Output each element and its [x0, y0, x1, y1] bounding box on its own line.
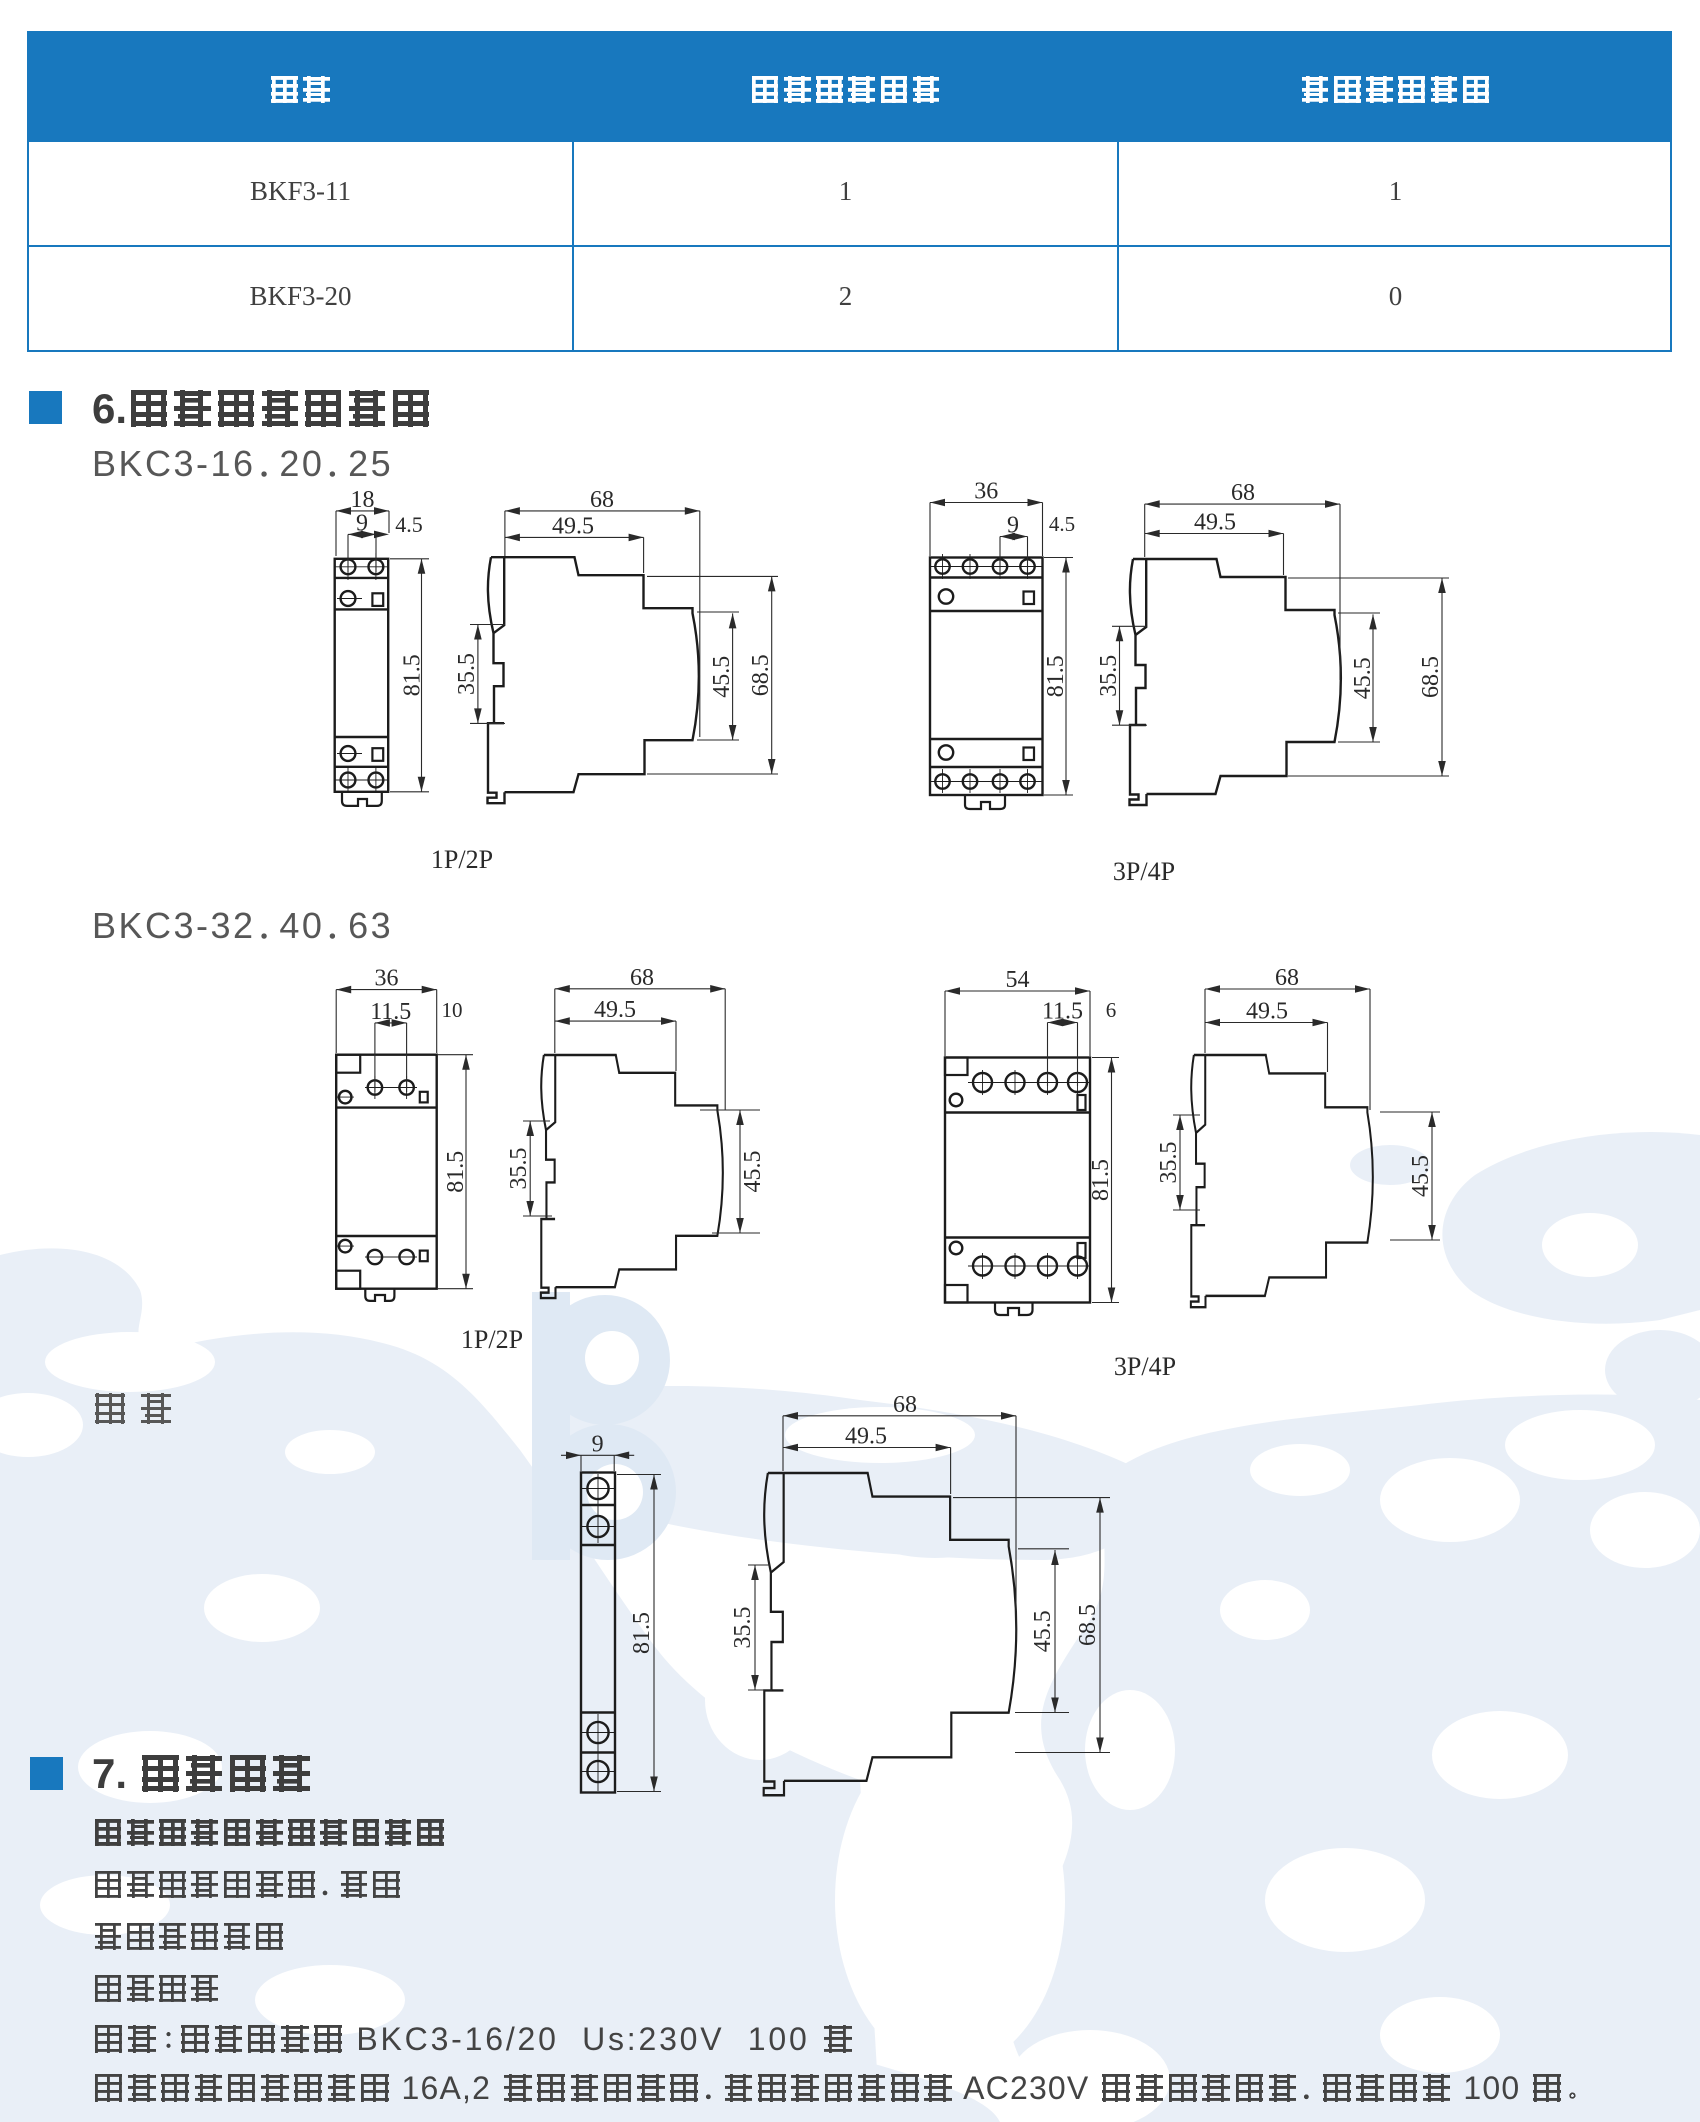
svg-text:4.5: 4.5: [395, 512, 423, 537]
svg-text:35.5: 35.5: [506, 1148, 532, 1190]
svg-text:68: 68: [590, 487, 614, 513]
svg-text:45.5: 45.5: [709, 656, 735, 698]
svg-text:81.5: 81.5: [1088, 1159, 1114, 1201]
svg-text:68.5: 68.5: [1075, 1604, 1101, 1646]
svg-text:45.5: 45.5: [740, 1151, 766, 1193]
svg-text:36: 36: [974, 479, 998, 505]
svg-text:9: 9: [1007, 513, 1019, 539]
svg-text:49.5: 49.5: [594, 997, 636, 1023]
svg-text:45.5: 45.5: [1030, 1610, 1056, 1652]
svg-text:9: 9: [592, 1431, 604, 1457]
svg-text:49.5: 49.5: [552, 513, 594, 539]
svg-text:81.5: 81.5: [629, 1612, 655, 1654]
svg-text:54: 54: [1006, 967, 1030, 993]
svg-text:49.5: 49.5: [845, 1424, 887, 1450]
svg-text:45.5: 45.5: [1350, 657, 1376, 699]
svg-text:1P/2P: 1P/2P: [431, 845, 493, 874]
svg-text:11.5: 11.5: [370, 999, 411, 1025]
svg-text:10: 10: [442, 998, 463, 1022]
svg-text:68: 68: [630, 965, 654, 991]
svg-text:49.5: 49.5: [1194, 510, 1236, 536]
svg-text:68: 68: [893, 1392, 917, 1418]
svg-text:35.5: 35.5: [730, 1607, 756, 1649]
svg-text:81.5: 81.5: [400, 654, 426, 696]
svg-text:35.5: 35.5: [454, 653, 480, 695]
svg-text:35.5: 35.5: [1156, 1142, 1182, 1184]
svg-text:81.5: 81.5: [1043, 655, 1069, 697]
svg-text:35.5: 35.5: [1096, 655, 1122, 697]
svg-text:6: 6: [1106, 998, 1117, 1022]
svg-text:36: 36: [374, 966, 398, 992]
svg-text:18: 18: [351, 487, 375, 513]
svg-text:68: 68: [1275, 965, 1299, 991]
svg-text:3P/4P: 3P/4P: [1114, 1352, 1176, 1381]
svg-text:68.5: 68.5: [748, 654, 774, 696]
svg-text:11.5: 11.5: [1042, 999, 1083, 1025]
svg-text:45.5: 45.5: [1408, 1155, 1434, 1197]
svg-text:1P/2P: 1P/2P: [461, 1325, 523, 1354]
svg-text:49.5: 49.5: [1246, 999, 1288, 1025]
svg-text:68: 68: [1231, 480, 1255, 506]
svg-text:9: 9: [356, 510, 368, 536]
svg-text:81.5: 81.5: [443, 1151, 469, 1193]
svg-text:4.5: 4.5: [1049, 512, 1075, 536]
svg-text:68.5: 68.5: [1418, 656, 1444, 698]
svg-text:3P/4P: 3P/4P: [1113, 857, 1175, 886]
